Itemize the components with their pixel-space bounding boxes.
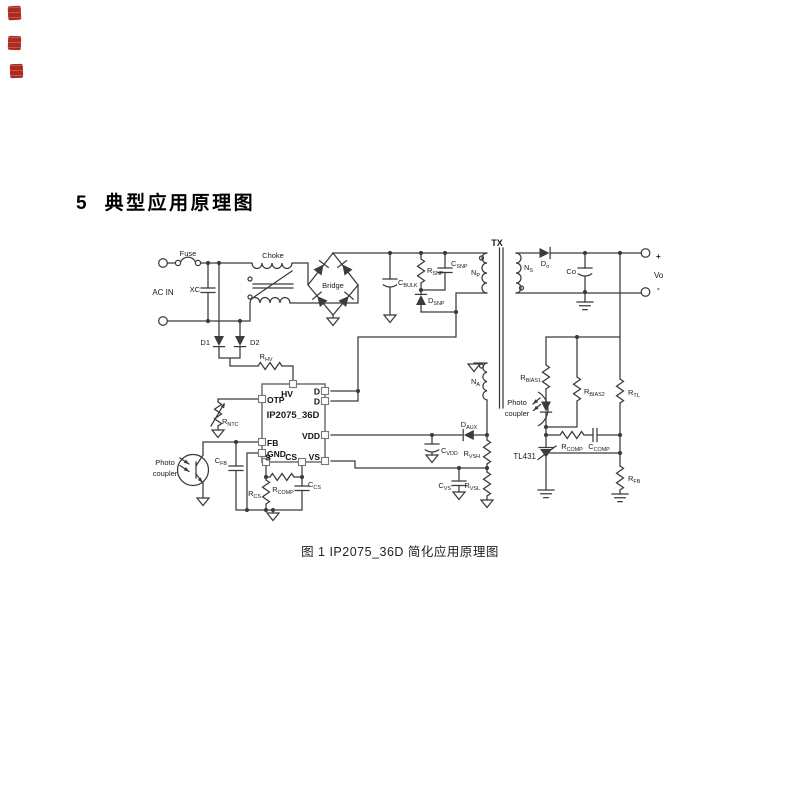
csnp-label: CSNP bbox=[451, 259, 468, 270]
fb-capacitor bbox=[229, 466, 243, 471]
rcs-label: RCS bbox=[248, 489, 261, 500]
pin-hv bbox=[290, 381, 297, 388]
pin-cs bbox=[299, 459, 306, 466]
figure-caption: 图 1 IP2075_36D 简化应用原理图 bbox=[0, 541, 800, 560]
vo-label: Vo bbox=[654, 271, 664, 280]
do-label: Do bbox=[541, 259, 549, 270]
component-labels: Fuse AC IN XC Choke Bridge D1 D2 RHV CBU… bbox=[152, 238, 664, 500]
tl431-label: TL431 bbox=[513, 452, 536, 461]
minus-label: - bbox=[657, 284, 660, 293]
d2-label: D2 bbox=[250, 338, 260, 347]
rhv-label: RHV bbox=[260, 352, 273, 363]
xc-capacitor bbox=[201, 288, 215, 293]
pin-label-cs: CS bbox=[285, 452, 297, 462]
output-diode bbox=[540, 248, 551, 259]
ccomp-label: CCOMP bbox=[588, 442, 610, 453]
fuse bbox=[175, 260, 200, 265]
rfb-label: RFB bbox=[628, 474, 641, 485]
datasheet-page: 5典型应用原理图 bbox=[0, 0, 800, 800]
cbulk-label: CBULK bbox=[398, 278, 418, 289]
rntc-label: RNTC bbox=[222, 417, 239, 428]
rbias2-label: RBIAS2 bbox=[584, 387, 605, 398]
pin-label-d2: D bbox=[314, 397, 320, 407]
fuse-label: Fuse bbox=[180, 249, 197, 258]
snubber-network bbox=[416, 259, 453, 305]
common-mode-choke-dots bbox=[248, 277, 252, 299]
dsnp-label: DSNP bbox=[428, 296, 445, 307]
pin-vdd bbox=[322, 432, 329, 439]
bridge-label: Bridge bbox=[322, 281, 344, 290]
co-label: Co bbox=[566, 267, 576, 276]
rvsh-label: RVSH bbox=[463, 449, 480, 460]
xc-label: XC bbox=[190, 285, 201, 294]
controller-ic: IP2075_36D HV OTP FB GND S CS VS VDD D D bbox=[259, 381, 329, 466]
pin-label-otp: OTP bbox=[267, 395, 285, 405]
photocoupler2-label-line2: coupler bbox=[505, 409, 530, 418]
plus-label: + bbox=[656, 252, 661, 261]
pin-label-s: S bbox=[265, 453, 271, 463]
pin-fb bbox=[259, 439, 266, 446]
cfb-label: CFB bbox=[215, 456, 228, 467]
application-schematic: IP2075_36D HV OTP FB GND S CS VS VDD D D bbox=[0, 0, 800, 800]
ac-in-label: AC IN bbox=[152, 288, 174, 297]
pin-d2 bbox=[322, 398, 329, 405]
na-label: NA bbox=[471, 377, 480, 388]
junction-dots bbox=[206, 251, 622, 512]
tx-label: TX bbox=[491, 238, 503, 248]
hv-startup-resistor bbox=[258, 363, 282, 370]
ns-label: NS bbox=[524, 263, 533, 274]
pin-label-fb: FB bbox=[267, 438, 278, 448]
photocoupler1-label-line1: Photo bbox=[155, 458, 175, 467]
rbias1-label: RBIAS1 bbox=[520, 373, 541, 384]
cvs-label: CVS bbox=[438, 481, 451, 492]
pin-vs bbox=[322, 458, 329, 465]
pin-d1 bbox=[322, 388, 329, 395]
rcomp-label: RCOMP bbox=[272, 485, 294, 496]
pin-label-d1: D bbox=[314, 387, 320, 397]
ic-name: IP2075_36D bbox=[267, 410, 320, 421]
rcomp2-label: RCOMP bbox=[561, 442, 583, 453]
input-diodes bbox=[214, 336, 246, 347]
photocoupler2-label-line1: Photo bbox=[507, 398, 527, 407]
ccs-label: CCS bbox=[308, 480, 321, 491]
pin-label-vs: VS bbox=[309, 452, 321, 462]
rvsl-label: RVSL bbox=[464, 481, 480, 492]
np-label: NP bbox=[471, 268, 480, 279]
primary-photocoupler bbox=[178, 455, 210, 506]
photocoupler1-label-line2: coupler bbox=[153, 469, 178, 478]
d1-label: D1 bbox=[200, 338, 210, 347]
pin-label-vdd: VDD bbox=[302, 431, 320, 441]
cvdd-label: CVDD bbox=[441, 446, 458, 457]
rtl-label: RTL bbox=[628, 388, 640, 399]
pin-otp bbox=[259, 396, 266, 403]
output-terminals bbox=[641, 249, 650, 297]
choke-label: Choke bbox=[262, 251, 284, 260]
